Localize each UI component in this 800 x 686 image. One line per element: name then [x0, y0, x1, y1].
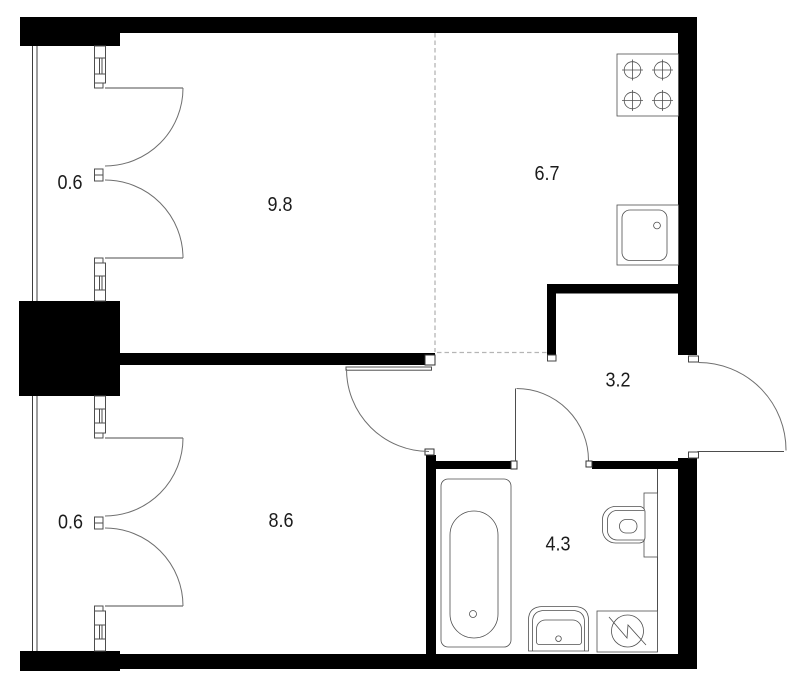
svg-text:0.6: 0.6 [58, 511, 83, 534]
svg-text:6.7: 6.7 [535, 162, 560, 185]
svg-text:0.6: 0.6 [58, 171, 83, 194]
svg-text:9.8: 9.8 [268, 193, 293, 216]
svg-text:4.3: 4.3 [546, 533, 571, 556]
svg-text:3.2: 3.2 [606, 369, 631, 392]
svg-text:8.6: 8.6 [269, 509, 294, 532]
